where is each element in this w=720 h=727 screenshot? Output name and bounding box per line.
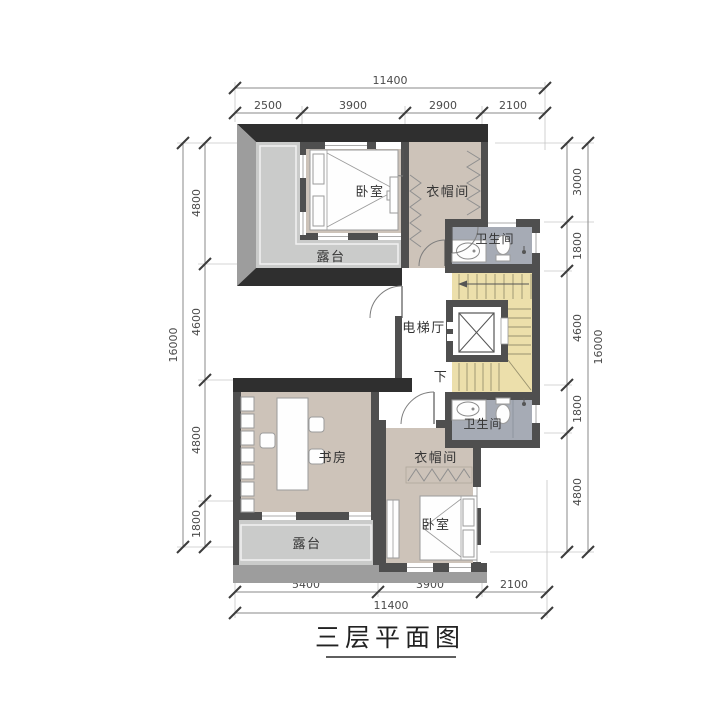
dim-top-seg1: 2500 <box>254 99 282 112</box>
dim-left-seg4: 1800 <box>190 510 203 538</box>
dim-left-seg3: 4800 <box>190 426 203 454</box>
passage-floor <box>379 392 445 428</box>
elevator-door <box>501 318 508 344</box>
drawing-title: 三层平面图 <box>315 623 465 657</box>
dim-top-total: 11400 <box>373 74 408 87</box>
drawing-title-text: 三层平面图 <box>315 623 465 652</box>
dim-bottom-seg3: 2100 <box>500 578 528 591</box>
wall-bedroom-cloakroom <box>401 142 409 268</box>
dim-right-seg2: 1800 <box>571 232 584 260</box>
dim-right-seg4: 1800 <box>571 395 584 423</box>
dim-left-total: 16000 <box>167 328 180 363</box>
service-column: 卫生间 <box>445 219 540 448</box>
roof-edge-bottom <box>237 268 402 286</box>
floor-plan-page: 11400 2500 3900 2900 2100 5400 3900 2100… <box>0 0 720 727</box>
room-label-bathroom-lower: 卫生间 <box>463 417 502 431</box>
parapet-left <box>237 124 256 286</box>
stairs-down-label: 下 <box>434 370 449 385</box>
room-label-study: 书房 <box>318 450 347 466</box>
dimension-left: 16000 4800 4600 4800 1800 <box>167 137 211 553</box>
room-label-elevator-hall: 电梯厅 <box>402 321 446 336</box>
elevator-shaft <box>446 300 508 362</box>
dim-right-seg3: 4600 <box>571 314 584 342</box>
room-label-cloakroom-lower: 衣帽间 <box>414 450 458 466</box>
closet-lower <box>387 500 399 558</box>
dim-top-seg3: 2900 <box>429 99 457 112</box>
dim-right-seg5: 4800 <box>571 478 584 506</box>
dimension-right: 3000 1800 4600 1800 4800 16000 <box>561 137 605 558</box>
roof-edge-lower <box>233 378 412 392</box>
dim-left-seg1: 4800 <box>190 189 203 217</box>
room-label-bedroom-upper: 卧室 <box>355 184 384 200</box>
dim-right-seg1: 3000 <box>571 168 584 196</box>
floor-plan-drawing: 11400 2500 3900 2900 2100 5400 3900 2100… <box>0 0 720 727</box>
bed-upper <box>310 150 398 230</box>
roof-edge-top <box>237 124 488 142</box>
room-label-bedroom-lower: 卧室 <box>421 517 450 533</box>
room-label-bathroom-upper: 卫生间 <box>475 232 514 246</box>
dim-right-total: 16000 <box>592 330 605 365</box>
door-elevator-hall-left <box>370 286 402 318</box>
dim-left-seg2: 4600 <box>190 308 203 336</box>
dimension-bottom: 5400 3900 2100 11400 <box>229 578 553 619</box>
dimension-top: 11400 2500 3900 2900 2100 <box>229 74 551 119</box>
room-label-terrace-lower: 露台 <box>292 537 321 552</box>
dim-top-seg4: 2100 <box>499 99 527 112</box>
bookshelf <box>241 397 254 512</box>
room-label-cloakroom-upper: 衣帽间 <box>426 184 470 200</box>
room-label-terrace-upper: 露台 <box>316 250 345 265</box>
dim-bottom-total: 11400 <box>374 599 409 612</box>
dim-top-seg2: 3900 <box>339 99 367 112</box>
elevator-hall: 电梯厅 下 <box>370 268 448 397</box>
